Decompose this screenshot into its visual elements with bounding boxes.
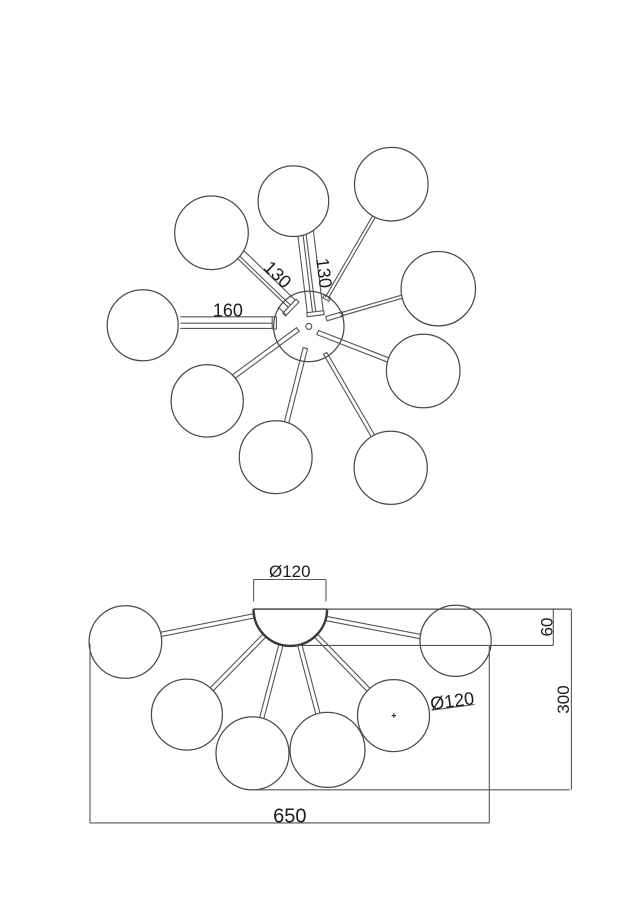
svg-text:160: 160 xyxy=(213,300,243,320)
svg-text:130: 130 xyxy=(312,257,336,289)
svg-text:300: 300 xyxy=(554,685,573,713)
svg-text:650: 650 xyxy=(273,806,306,828)
svg-text:Ø120: Ø120 xyxy=(269,562,311,581)
svg-text:60: 60 xyxy=(537,618,556,637)
